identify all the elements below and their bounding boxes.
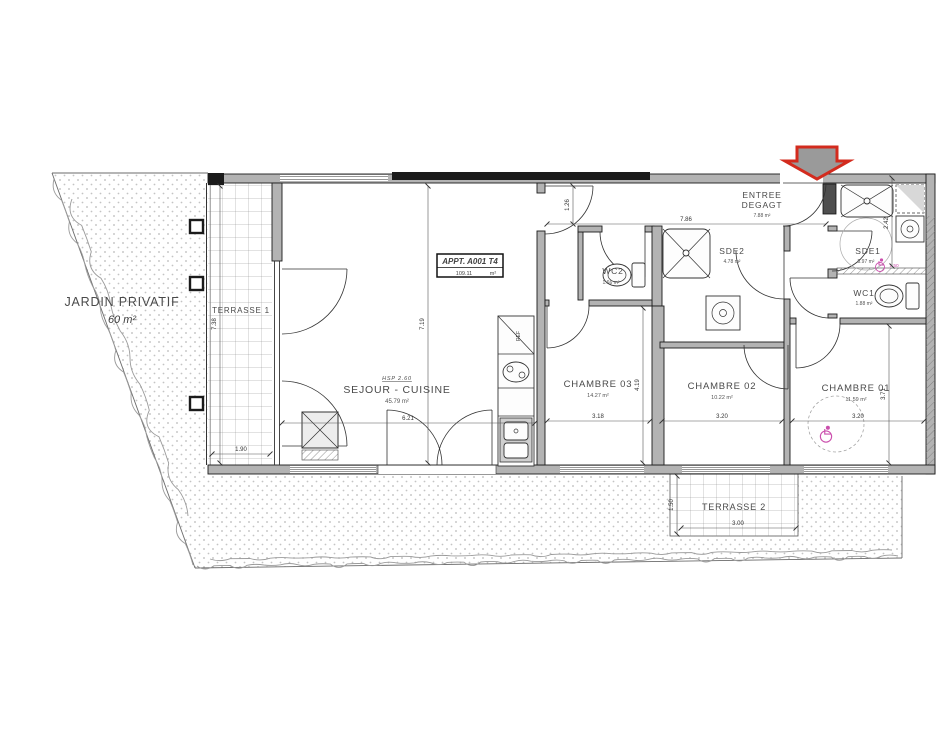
wall-wc2-sde2 [652, 226, 662, 306]
sde1-turning-circle-value: 1.50 [889, 263, 899, 269]
wall-stub [545, 300, 549, 306]
wc2-area: 1.66 m² [603, 280, 620, 286]
dim-ch03-w: 3.18 [592, 414, 604, 420]
ch01-area: 11.59 m² [845, 397, 866, 403]
dim-ch01-w: 3.20 [852, 414, 864, 420]
dim-sejour-h: 7.19 [420, 318, 426, 330]
sejour-area: 45.79 m² [385, 399, 409, 405]
dim-ch02-w: 3.20 [716, 414, 728, 420]
wall-stub [828, 269, 837, 278]
dim-entree-h: 1.26 [565, 199, 571, 211]
dim-ch01-h: 3.71 [881, 388, 887, 400]
sink-basin [504, 422, 528, 440]
sde2-washing-machine [706, 296, 740, 330]
ch03-area: 14.27 m² [587, 393, 609, 399]
wall-stub [828, 226, 837, 231]
garden-label: JARDIN PRIVATIF [64, 295, 179, 309]
apartment-area-unit: m² [490, 271, 497, 277]
wc2-label: WC2 [602, 266, 623, 276]
wc1-toilet [875, 283, 919, 309]
ch02-label: CHAMBRE 02 [688, 381, 757, 392]
dim-terrasse1-h: 7.38 [212, 318, 218, 330]
wc1-area: 1.88 m² [856, 301, 873, 307]
entree-label-1: ENTREE [742, 190, 781, 200]
dim-terrasse2-w: 3.00 [732, 521, 744, 527]
ch02-area: 10.22 m² [711, 395, 733, 401]
wall-stub [790, 318, 796, 324]
window-ch01 [804, 466, 888, 473]
wall-ch01-top [840, 318, 926, 324]
apartment-id: APPT. A001 T4 [441, 257, 498, 266]
ch03-label: CHAMBRE 03 [564, 379, 633, 390]
floor-plan: JARDIN PRIVATIF 60 m² TERRASSE 2 TERRASS… [40, 16, 940, 721]
window-ch02 [682, 466, 770, 473]
cooktop [503, 362, 529, 382]
wall-ch03-top [589, 300, 652, 306]
fridge-label: REF [516, 331, 522, 341]
wall-stub [537, 183, 545, 193]
technical-shaft [302, 412, 338, 460]
sde1-washing-machine [896, 216, 924, 242]
wall-stub [828, 314, 837, 318]
wall-wc2-left [578, 232, 583, 300]
terrasse-2-label: TERRASSE 2 [702, 502, 766, 512]
dim-terrasse1-w: 1.90 [235, 447, 247, 453]
sde2-area: 4.78 m² [724, 259, 741, 265]
dim-ch03-h: 4.19 [635, 379, 641, 391]
dim-terrasse2-h: 1.50 [669, 499, 675, 511]
french-door-opening [378, 466, 496, 475]
wc1-label: WC1 [853, 288, 874, 298]
wall-sejour-right [537, 231, 545, 465]
garden-area: 60 m² [108, 314, 136, 326]
sde1-label: SDE1 [855, 246, 880, 256]
terrasse-1-label: TERRASSE 1 [212, 306, 270, 315]
wall-right-hatch [926, 216, 935, 474]
dim-sejour-w: 6.21 [402, 416, 414, 422]
apartment-area-value: 109.11 [456, 271, 472, 277]
sde2-shower [663, 229, 710, 278]
sde1-shower [841, 185, 893, 217]
wall-ch02-ch01 [784, 299, 790, 465]
wall-ch02-top [660, 342, 784, 348]
entree-label-2: DEGAGT [742, 200, 783, 210]
wall-terrace-sejour [272, 183, 282, 261]
wall-ch03-ch02 [652, 306, 664, 465]
wall-wc2-top-left [578, 226, 602, 232]
window-ch03 [560, 466, 644, 473]
sejour-label: SEJOUR - CUISINE [343, 384, 450, 396]
sejour-hsp: HSP 2.60 [382, 376, 412, 382]
window-sejour [290, 466, 376, 473]
sde2-label: SDE2 [719, 246, 744, 256]
sde1-closet [896, 185, 924, 213]
dim-entree-w: 7.86 [680, 217, 692, 223]
entree-area: 7.88 m² [754, 213, 771, 219]
dim-sde1-h: 2.42 [884, 217, 890, 229]
sde1-area: 5.97 m² [858, 259, 875, 265]
sink-drainer [504, 443, 528, 458]
floor-plan-canvas: JARDIN PRIVATIF 60 m² TERRASSE 2 TERRASS… [40, 16, 940, 721]
window-north [280, 175, 388, 181]
wall-corridor-left-a [784, 226, 790, 251]
duct-shaft [823, 184, 836, 214]
corner-post [208, 173, 224, 185]
kitchen-block: REF [498, 316, 534, 466]
apartment-title-box: APPT. A001 T4 109.11 m² [437, 254, 503, 277]
wall-top-black-segment [392, 172, 650, 180]
